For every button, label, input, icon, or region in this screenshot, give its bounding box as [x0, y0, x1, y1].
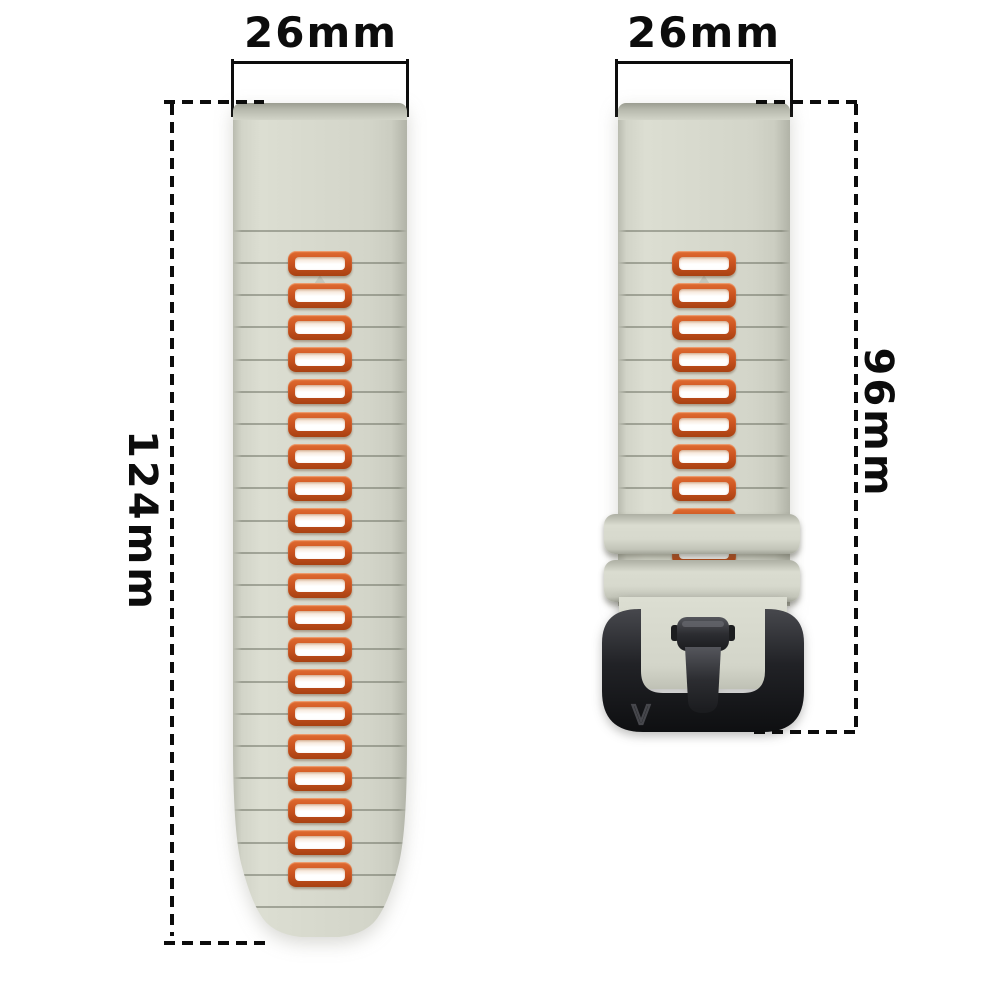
right-width-dimension-line [617, 61, 793, 64]
left-width-dimension-line [233, 61, 409, 64]
adjustment-slot-inner [295, 804, 345, 817]
left-band-top-cap [233, 103, 407, 120]
left-length-extension-line [170, 104, 174, 936]
adjustment-slot-inner [679, 257, 729, 270]
groove-line [618, 230, 790, 232]
keeper-loop-1 [604, 514, 800, 554]
buckle: V [597, 597, 809, 739]
adjustment-slot [288, 540, 352, 565]
right-top-extension-line [756, 100, 858, 104]
adjustment-slot [288, 476, 352, 501]
adjustment-slot-inner [295, 450, 345, 463]
left-top-extension-line [164, 100, 264, 104]
adjustment-slot [288, 862, 352, 887]
groove-line [233, 906, 407, 908]
adjustment-slot-inner [295, 514, 345, 527]
watch-band-dimension-diagram: 26mm 124mm 26mm 96mm [0, 0, 1000, 1000]
adjustment-slot [288, 412, 352, 437]
adjustment-slot [288, 734, 352, 759]
adjustment-slot [288, 315, 352, 340]
right-width-tick-end [790, 59, 793, 117]
right-band-top-cap [618, 103, 790, 120]
adjustment-slot [672, 251, 736, 276]
adjustment-slot-inner [295, 772, 345, 785]
adjustment-slot-inner [679, 482, 729, 495]
left-length-label: 124mm [119, 430, 165, 612]
adjustment-slot [288, 444, 352, 469]
left-width-label: 26mm [221, 12, 421, 54]
adjustment-slot [288, 766, 352, 791]
adjustment-slot [288, 573, 352, 598]
right-length-extension-line [854, 104, 858, 731]
adjustment-slot [288, 379, 352, 404]
adjustment-slot-inner [295, 675, 345, 688]
adjustment-slot-inner [295, 643, 345, 656]
adjustment-slot [288, 251, 352, 276]
adjustment-slot [672, 379, 736, 404]
adjustment-slot [288, 347, 352, 372]
left-band-wrapper [233, 103, 407, 939]
adjustment-slot-inner [295, 257, 345, 270]
adjustment-slot-inner [295, 579, 345, 592]
adjustment-slot-inner [295, 289, 345, 302]
buckle-prong [685, 647, 721, 713]
groove-line [233, 230, 407, 232]
left-band [233, 103, 407, 939]
adjustment-slot-inner [295, 836, 345, 849]
adjustment-slot [672, 315, 736, 340]
right-length-label: 96mm [855, 347, 901, 498]
adjustment-slot [288, 701, 352, 726]
buckle-marking: V [632, 701, 650, 731]
adjustment-slot-inner [295, 385, 345, 398]
adjustment-slot-inner [295, 353, 345, 366]
adjustment-slot-inner [679, 353, 729, 366]
adjustment-slot [672, 476, 736, 501]
adjustment-slot-inner [295, 707, 345, 720]
adjustment-slot [672, 444, 736, 469]
right-width-label: 26mm [604, 12, 804, 54]
adjustment-slot-inner [295, 611, 345, 624]
adjustment-slot-inner [679, 418, 729, 431]
adjustment-slot [288, 669, 352, 694]
adjustment-slot [672, 347, 736, 372]
adjustment-slot-inner [679, 385, 729, 398]
adjustment-slot-inner [295, 482, 345, 495]
adjustment-slot-inner [295, 546, 345, 559]
adjustment-slot [288, 798, 352, 823]
adjustment-slot [288, 605, 352, 630]
left-bottom-extension-line [164, 941, 270, 945]
adjustment-slot-inner [295, 740, 345, 753]
adjustment-slot-inner [679, 450, 729, 463]
adjustment-slot-inner [295, 321, 345, 334]
adjustment-slot [672, 412, 736, 437]
prong-highlight [682, 621, 724, 627]
adjustment-slot [288, 283, 352, 308]
adjustment-slot-inner [295, 418, 345, 431]
right-bottom-extension-line [754, 730, 858, 734]
adjustment-slot [288, 508, 352, 533]
adjustment-slot [672, 283, 736, 308]
keeper-loop-2 [604, 560, 800, 602]
adjustment-slot [288, 830, 352, 855]
adjustment-slot-inner [295, 868, 345, 881]
adjustment-slot-inner [679, 321, 729, 334]
adjustment-slot [288, 637, 352, 662]
adjustment-slot-inner [679, 289, 729, 302]
